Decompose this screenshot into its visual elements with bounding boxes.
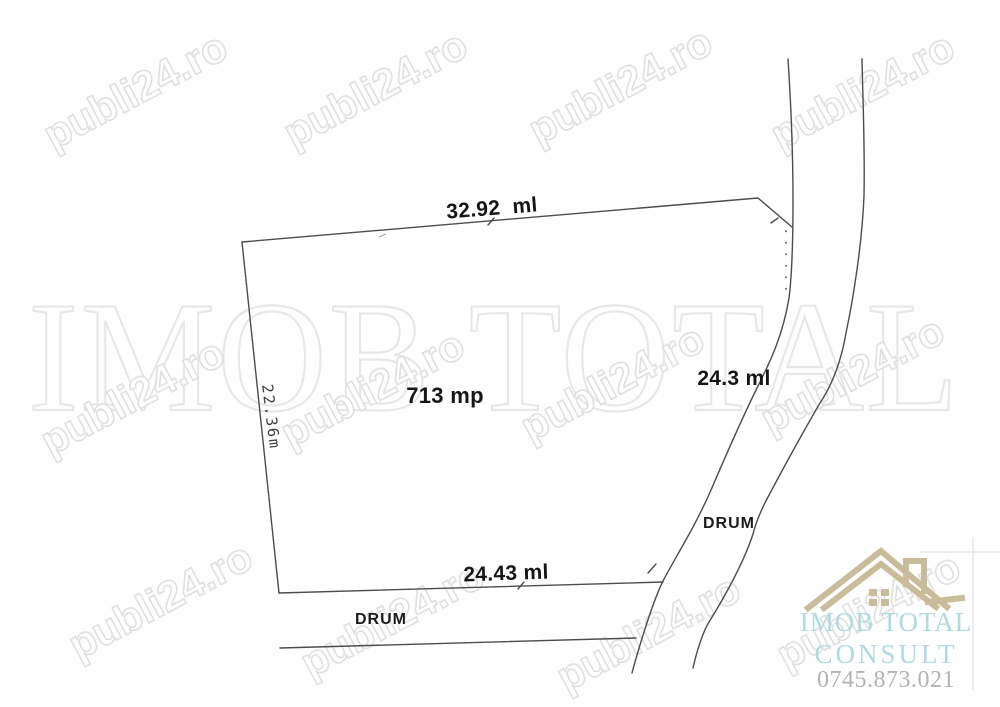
bottom-road-label: DRUM — [341, 611, 421, 629]
right-dimension-label: 24.3 ml — [674, 367, 794, 391]
area-label: 713 mp — [385, 383, 505, 409]
small-scan-mark — [379, 234, 386, 237]
bottom-dimension-label: 24.43 ml — [446, 560, 567, 588]
logo-name-line2: CONSULT — [790, 639, 982, 670]
right-road-label: DRUM — [689, 515, 769, 533]
scanned-plot-sketch: IMOB TOTAL publi24.ro publi24.ro publi24… — [0, 0, 1000, 707]
road-left-line — [632, 59, 793, 673]
tick-chamfer — [771, 218, 778, 223]
tick-bottom-right — [648, 564, 656, 573]
bottom-road-line — [280, 638, 636, 648]
logo-name-line1: IMOB TOTAL — [790, 607, 982, 638]
logo-phone-number: 0745.873.021 — [790, 667, 982, 694]
road-right-line — [693, 59, 864, 668]
sketch-lines-layer — [0, 0, 1000, 707]
